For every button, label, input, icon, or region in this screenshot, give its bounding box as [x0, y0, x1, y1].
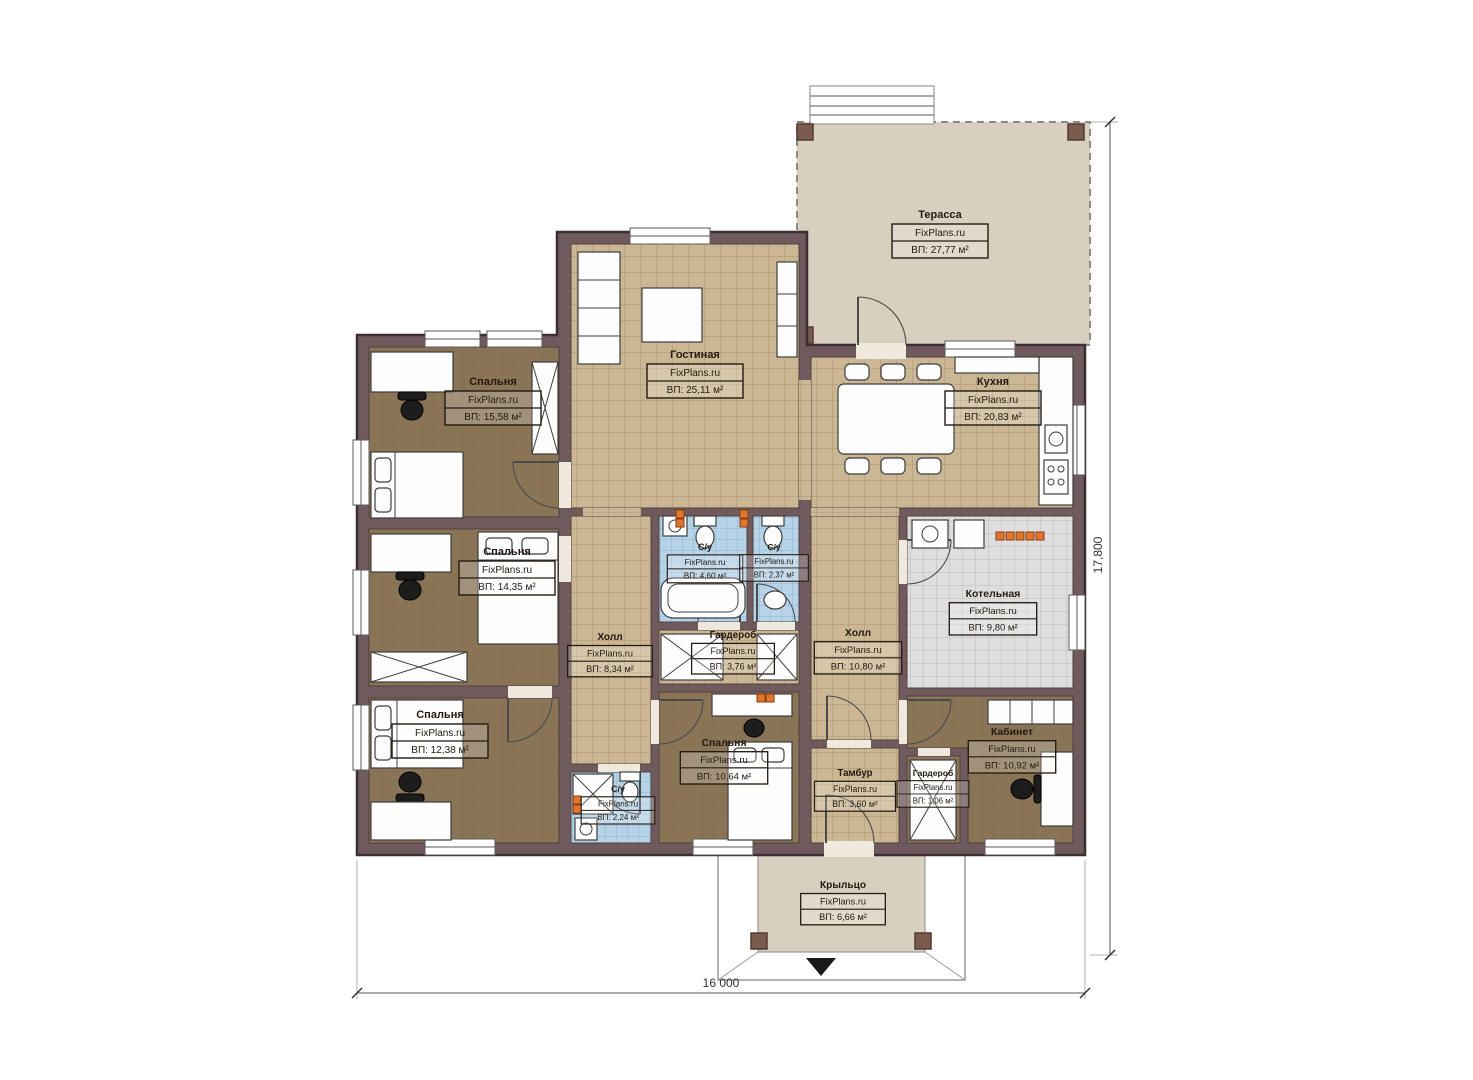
window-icon	[353, 570, 369, 635]
svg-text:17,800: 17,800	[1091, 536, 1105, 573]
bed-icon	[371, 452, 463, 518]
svg-text:С/у: С/у	[698, 542, 712, 552]
floor-plan-svg: ТерассаFixPlans.ruВП: 27,77 м² ГостинаяF…	[0, 0, 1473, 1080]
cabinet-icon	[777, 262, 797, 357]
window-icon	[630, 228, 710, 244]
svg-text:ВП: 25,11 м²: ВП: 25,11 м²	[667, 385, 724, 396]
svg-text:Гостиная: Гостиная	[670, 349, 720, 361]
shelving-icon	[578, 252, 620, 364]
svg-text:Крыльцо: Крыльцо	[820, 880, 866, 891]
vent-row-icon	[996, 532, 1044, 540]
svg-text:Холл: Холл	[845, 628, 871, 639]
window-icon	[353, 705, 369, 770]
svg-text:16 000: 16 000	[703, 976, 740, 990]
svg-text:Спальня: Спальня	[701, 738, 746, 749]
svg-text:ВП: 20,83 м²: ВП: 20,83 м²	[964, 412, 1022, 423]
window-icon	[425, 331, 480, 347]
window-icon	[487, 331, 542, 347]
svg-text:FixPlans.ru: FixPlans.ru	[685, 558, 726, 567]
svg-text:FixPlans.ru: FixPlans.ru	[834, 645, 882, 656]
svg-text:FixPlans.ru: FixPlans.ru	[598, 799, 638, 808]
dining-table-icon	[838, 364, 954, 474]
svg-text:ВП: 2,24 м²: ВП: 2,24 м²	[597, 813, 639, 822]
svg-text:ВП: 1,06 м²: ВП: 1,06 м²	[913, 796, 954, 805]
svg-text:Холл: Холл	[597, 632, 622, 643]
svg-text:ВП: 27,77 м²: ВП: 27,77 м²	[911, 245, 969, 256]
porch-post-icon	[915, 933, 931, 949]
svg-text:FixPlans.ru: FixPlans.ru	[700, 755, 748, 766]
svg-text:FixPlans.ru: FixPlans.ru	[915, 228, 965, 239]
shelf-icon	[988, 700, 1073, 724]
window-icon	[353, 440, 369, 505]
svg-text:FixPlans.ru: FixPlans.ru	[968, 395, 1018, 406]
svg-text:ВП: 8,34 м²: ВП: 8,34 м²	[586, 664, 634, 674]
window-icon	[425, 839, 495, 855]
svg-text:ВП: 3,76 м²: ВП: 3,76 м²	[710, 662, 757, 672]
svg-text:ВП: 4,60 м²: ВП: 4,60 м²	[684, 572, 727, 581]
window-icon	[1069, 595, 1085, 650]
vent-icon	[573, 796, 581, 813]
svg-text:Гардероб: Гардероб	[710, 630, 757, 641]
desk-icon	[371, 534, 451, 572]
svg-text:FixPlans.ru: FixPlans.ru	[415, 728, 465, 739]
svg-text:FixPlans.ru: FixPlans.ru	[755, 557, 794, 566]
svg-text:FixPlans.ru: FixPlans.ru	[914, 783, 953, 792]
svg-text:ВП: 9,80 м²: ВП: 9,80 м²	[968, 622, 1017, 633]
svg-text:Спальня: Спальня	[483, 546, 531, 558]
svg-text:Терасса: Терасса	[918, 209, 962, 221]
svg-text:ВП: 15,58 м²: ВП: 15,58 м²	[464, 412, 522, 423]
svg-text:ВП: 12,38 м²: ВП: 12,38 м²	[411, 745, 469, 756]
terrace-post-icon	[1068, 124, 1084, 140]
window-icon	[945, 341, 1015, 357]
terrace-post-icon	[797, 124, 813, 140]
vent-icon	[757, 694, 774, 702]
window-icon	[693, 839, 753, 855]
office-chair-icon	[744, 719, 764, 737]
svg-text:FixPlans.ru: FixPlans.ru	[482, 565, 532, 576]
svg-text:ВП: 6,66 м²: ВП: 6,66 м²	[819, 912, 867, 922]
svg-text:С/у: С/у	[611, 784, 625, 794]
desk-icon	[712, 694, 792, 716]
svg-text:Котельная: Котельная	[966, 589, 1021, 600]
svg-text:FixPlans.ru: FixPlans.ru	[710, 646, 755, 656]
window-icon	[985, 839, 1055, 855]
porch-post-icon	[751, 933, 767, 949]
vent-icon	[740, 510, 748, 527]
svg-text:FixPlans.ru: FixPlans.ru	[820, 897, 866, 907]
desk-icon	[371, 802, 451, 840]
office-chair-icon	[396, 772, 424, 802]
sink-icon	[764, 591, 786, 609]
wardrobe-icon	[371, 652, 467, 682]
svg-text:С/у: С/у	[767, 542, 781, 552]
svg-text:ВП: 10,80 м²: ВП: 10,80 м²	[831, 661, 886, 672]
svg-text:FixPlans.ru: FixPlans.ru	[988, 744, 1036, 755]
svg-text:Гардероб: Гардероб	[913, 768, 954, 778]
door-wardrobe2	[918, 748, 950, 756]
vent-icon	[676, 510, 684, 527]
svg-text:FixPlans.ru: FixPlans.ru	[670, 368, 720, 379]
boiler-equipment-icon	[912, 520, 984, 548]
svg-text:Кабинет: Кабинет	[991, 726, 1033, 738]
stove-icon	[1044, 460, 1068, 494]
svg-text:Спальня: Спальня	[416, 709, 464, 721]
table-icon	[642, 288, 702, 342]
desk-icon	[371, 352, 453, 392]
svg-text:ВП: 10,64 м²: ВП: 10,64 м²	[697, 771, 752, 782]
bathtub-icon	[661, 578, 745, 618]
svg-text:FixPlans.ru: FixPlans.ru	[969, 606, 1017, 617]
svg-text:ВП: 10,92 м²: ВП: 10,92 м²	[985, 760, 1040, 771]
sink-icon	[1045, 425, 1067, 453]
terrace-stairs-icon	[810, 86, 934, 124]
svg-text:Тамбур: Тамбур	[837, 768, 872, 779]
svg-text:ВП: 2,37 м²: ВП: 2,37 м²	[754, 570, 795, 579]
svg-text:FixPlans.ru: FixPlans.ru	[468, 395, 518, 406]
svg-text:ВП: 14,35 м²: ВП: 14,35 м²	[478, 582, 536, 593]
svg-text:FixPlans.ru: FixPlans.ru	[833, 784, 877, 794]
svg-text:Спальня: Спальня	[469, 376, 517, 388]
svg-text:Кухня: Кухня	[977, 376, 1009, 388]
svg-text:ВП: 3,60 м²: ВП: 3,60 м²	[832, 799, 878, 809]
svg-text:FixPlans.ru: FixPlans.ru	[587, 649, 633, 659]
